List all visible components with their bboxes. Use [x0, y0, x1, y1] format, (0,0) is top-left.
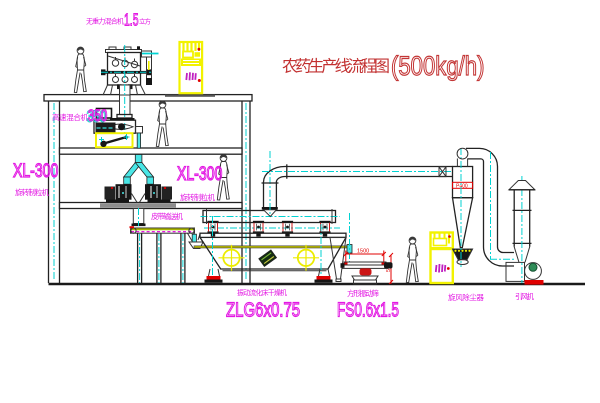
svg-text:农药生产线流程图: 农药生产线流程图 — [282, 58, 390, 76]
svg-text:旋风除尘器: 旋风除尘器 — [448, 292, 485, 302]
svg-text:XL-300: XL-300 — [177, 163, 222, 185]
svg-text:ZLG6x0.75: ZLG6x0.75 — [226, 298, 300, 321]
svg-text:立方: 立方 — [139, 17, 152, 26]
svg-text:振动流化床干燥机: 振动流化床干燥机 — [237, 288, 287, 297]
svg-text:无重力混合机: 无重力混合机 — [86, 17, 124, 26]
svg-text:1.5: 1.5 — [124, 11, 139, 31]
svg-text:(500kg/h): (500kg/h) — [391, 52, 484, 82]
svg-text:FS0.6x1.5: FS0.6x1.5 — [337, 299, 399, 321]
svg-text:旋转制粒机: 旋转制粒机 — [15, 187, 50, 197]
svg-text:高速混合机: 高速混合机 — [52, 112, 89, 122]
svg-text:方形振动筛: 方形振动筛 — [347, 288, 380, 298]
svg-text:旋转制粒机: 旋转制粒机 — [180, 192, 216, 202]
svg-text:引风机: 引风机 — [515, 291, 535, 301]
svg-text:1500: 1500 — [357, 249, 369, 255]
svg-text:350: 350 — [88, 107, 107, 126]
svg-text:XL-300: XL-300 — [13, 160, 58, 182]
svg-text:皮带输送机: 皮带输送机 — [151, 211, 184, 221]
svg-text:P400: P400 — [456, 184, 468, 190]
